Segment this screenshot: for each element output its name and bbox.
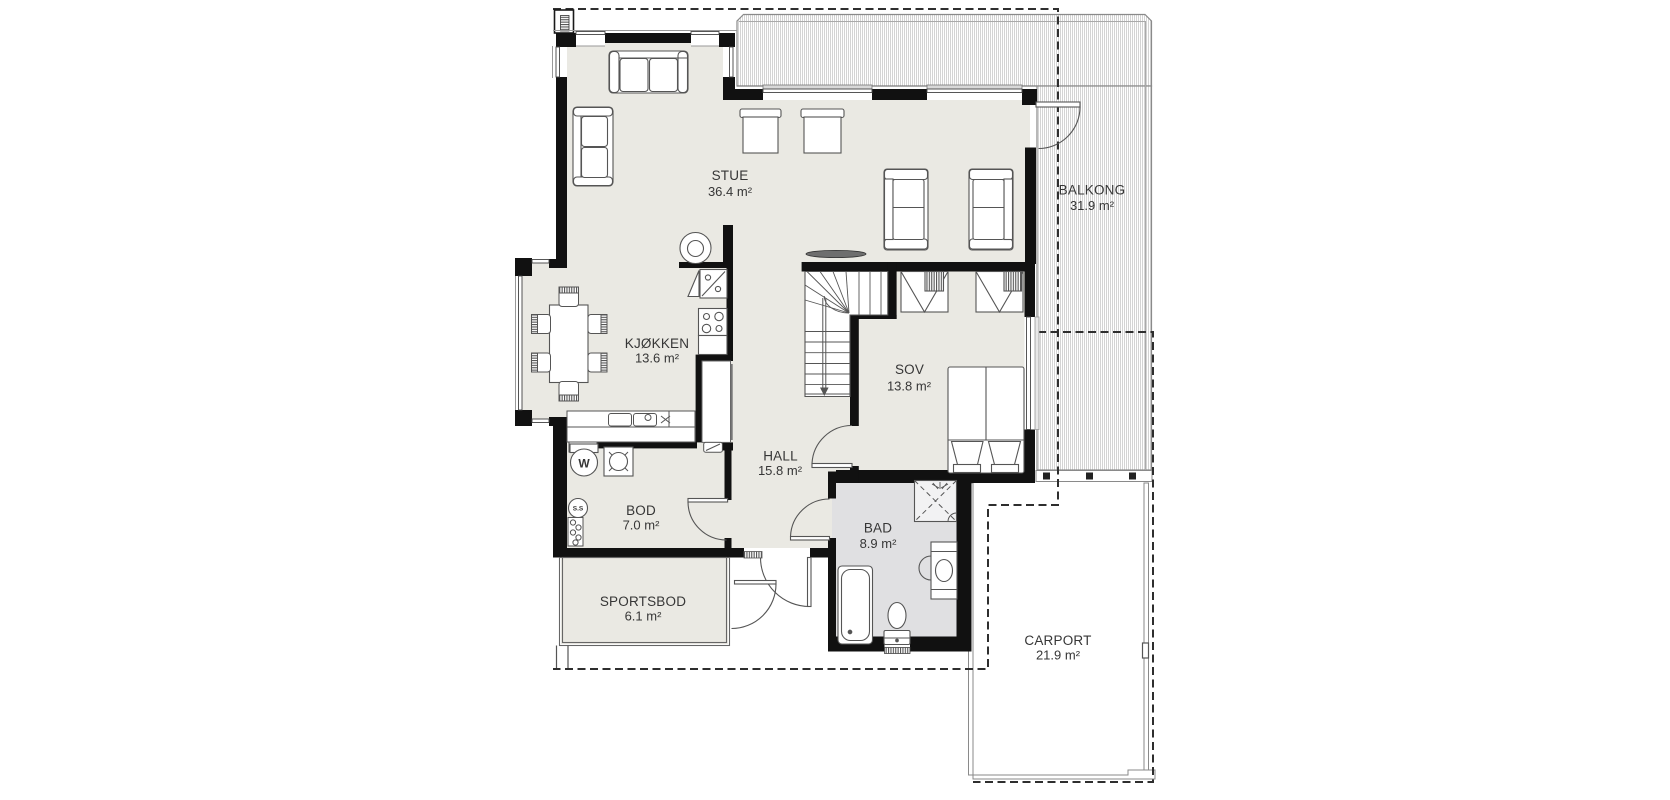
svg-text:BALKONG: BALKONG	[1059, 183, 1126, 198]
svg-text:W: W	[578, 457, 590, 471]
svg-text:7.0 m²: 7.0 m²	[623, 518, 661, 533]
svg-text:6.1 m²: 6.1 m²	[625, 609, 663, 624]
svg-text:HALL: HALL	[763, 449, 798, 464]
svg-text:KJØKKEN: KJØKKEN	[625, 336, 689, 351]
svg-text:S.S: S.S	[573, 506, 584, 513]
svg-text:BOD: BOD	[626, 503, 656, 518]
svg-text:13.8 m²: 13.8 m²	[887, 379, 932, 394]
svg-text:BAD: BAD	[864, 521, 892, 536]
svg-text:36.4 m²: 36.4 m²	[708, 184, 753, 199]
svg-text:15.8 m²: 15.8 m²	[758, 463, 803, 478]
svg-text:13.6 m²: 13.6 m²	[635, 351, 680, 366]
svg-text:SPORTSBOD: SPORTSBOD	[600, 594, 686, 609]
svg-text:8.9 m²: 8.9 m²	[860, 536, 898, 551]
svg-text:SOV: SOV	[895, 362, 924, 377]
svg-text:STUE: STUE	[712, 168, 749, 183]
svg-text:CARPORT: CARPORT	[1024, 633, 1091, 648]
svg-text:21.9 m²: 21.9 m²	[1036, 648, 1081, 663]
svg-text:31.9 m²: 31.9 m²	[1070, 198, 1115, 213]
